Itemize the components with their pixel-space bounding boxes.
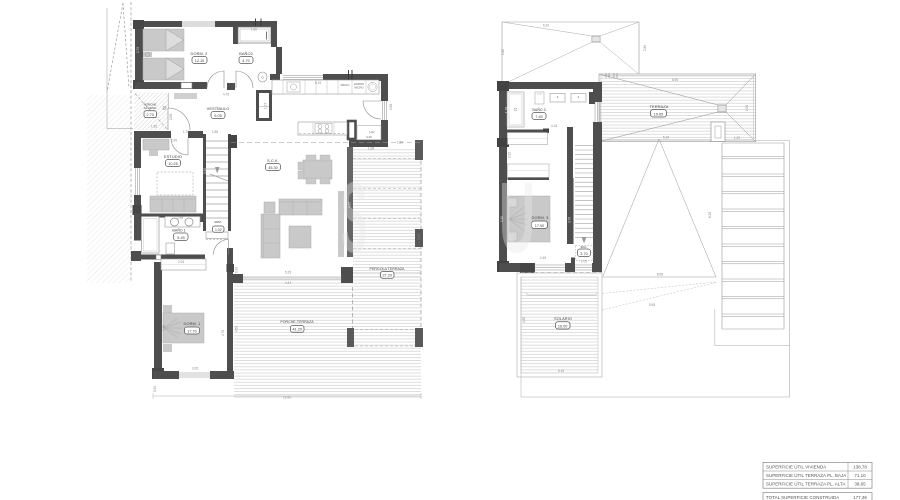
svg-text:41.20: 41.20 (292, 328, 302, 332)
svg-text:71,10: 71,10 (854, 473, 866, 478)
svg-text:0.90: 0.90 (235, 267, 239, 273)
svg-text:MICRO: MICRO (354, 86, 364, 90)
svg-text:1.02: 1.02 (215, 228, 222, 232)
svg-text:2.95: 2.95 (177, 216, 183, 220)
svg-text:TERRAZA: TERRAZA (650, 104, 669, 109)
svg-text:5.19: 5.19 (315, 81, 321, 85)
svg-text:4.44: 4.44 (285, 281, 291, 285)
svg-text:1.80: 1.80 (397, 141, 403, 145)
svg-text:17.70: 17.70 (187, 329, 197, 333)
svg-text:38,65: 38,65 (854, 482, 866, 487)
svg-text:6.95: 6.95 (672, 78, 678, 82)
svg-text:FRIGO: FRIGO (341, 83, 351, 87)
svg-text:2.66: 2.66 (389, 104, 393, 110)
svg-text:U: U (499, 162, 535, 274)
svg-text:0.90: 0.90 (417, 234, 421, 240)
svg-text:3.76: 3.76 (568, 217, 572, 223)
svg-text:4.70: 4.70 (242, 59, 249, 63)
svg-text:8.55: 8.55 (657, 273, 663, 277)
svg-text:12.10: 12.10 (195, 59, 205, 63)
svg-text:SUPERFICIE ÚTIL VIVIENDA: SUPERFICIE ÚTIL VIVIENDA (766, 464, 826, 470)
svg-text:PORCHE-TERRAZA: PORCHE-TERRAZA (280, 320, 314, 324)
svg-text:2.70: 2.70 (147, 113, 154, 117)
svg-text:16.00: 16.00 (558, 324, 568, 328)
svg-text:3.30: 3.30 (203, 168, 207, 174)
svg-text:9.05: 9.05 (214, 114, 221, 118)
svg-text:5.45: 5.45 (177, 236, 184, 240)
svg-text:5.15: 5.15 (663, 136, 669, 140)
svg-text:3.15: 3.15 (508, 152, 512, 158)
svg-text:4.70: 4.70 (223, 93, 229, 97)
svg-text:SOLARIO: SOLARIO (554, 316, 572, 321)
svg-text:S.C.K.: S.C.K. (267, 158, 279, 163)
svg-text:1.55: 1.55 (151, 125, 157, 129)
svg-text:2.99: 2.99 (171, 139, 177, 143)
svg-text:VESTÍBULO: VESTÍBULO (207, 106, 230, 111)
svg-text:2.80: 2.80 (501, 49, 505, 55)
svg-text:SUPERFICIE ÚTIL TERRAZA PL. AL: SUPERFICIE ÚTIL TERRAZA PL. ALTA (766, 481, 845, 487)
svg-text:4.50: 4.50 (235, 326, 239, 332)
svg-text:1.23: 1.23 (264, 103, 268, 109)
svg-text:3.70: 3.70 (580, 252, 587, 256)
svg-text:1.80: 1.80 (251, 28, 257, 32)
svg-text:1.20: 1.20 (734, 136, 740, 140)
svg-text:2.46: 2.46 (540, 256, 546, 260)
svg-text:6.20: 6.20 (543, 24, 549, 28)
svg-text:SUPERFICIE ÚTIL TERRAZA PL. BA: SUPERFICIE ÚTIL TERRAZA PL. BAJA (766, 472, 846, 478)
svg-text:DORM. 1: DORM. 1 (184, 321, 201, 326)
svg-text:1.05: 1.05 (581, 260, 587, 264)
svg-text:LAV: LAV (369, 130, 374, 134)
svg-text:5.25: 5.25 (285, 271, 291, 275)
svg-text:3.05: 3.05 (192, 367, 198, 371)
svg-text:TOTAL SUPERFICIE CONSTRUIDA: TOTAL SUPERFICIE CONSTRUIDA (766, 495, 839, 500)
svg-text:0.90: 0.90 (153, 386, 157, 392)
svg-text:ACCESO: ACCESO (144, 106, 157, 110)
svg-text:4.70: 4.70 (221, 330, 225, 336)
svg-text:1.70: 1.70 (183, 130, 189, 134)
svg-text:1.68: 1.68 (368, 147, 374, 151)
svg-text:5.16: 5.16 (558, 369, 564, 373)
svg-text:ARM.: ARM. (214, 220, 222, 224)
svg-text:4.80: 4.80 (522, 317, 526, 323)
svg-text:27.20: 27.20 (382, 274, 392, 278)
svg-text:138,78: 138,78 (853, 465, 867, 470)
svg-text:3.38: 3.38 (162, 325, 166, 331)
svg-text:17.90: 17.90 (535, 224, 545, 228)
svg-text:BAÑO 3: BAÑO 3 (532, 107, 545, 112)
svg-text:45.30: 45.30 (268, 166, 278, 170)
svg-text:0.20: 0.20 (366, 135, 372, 139)
svg-text:1.88: 1.88 (212, 130, 218, 134)
svg-text:10.25: 10.25 (168, 162, 178, 166)
svg-text:DORM. 2: DORM. 2 (191, 51, 208, 56)
svg-text:7.40: 7.40 (535, 115, 542, 119)
svg-text:2.06: 2.06 (178, 260, 184, 264)
svg-text:PERGOLA TERRAZA: PERGOLA TERRAZA (370, 267, 405, 271)
svg-text:1.78: 1.78 (505, 107, 509, 113)
svg-text:2.08: 2.08 (169, 114, 173, 120)
svg-text:4.18: 4.18 (551, 124, 557, 128)
svg-text:6.28: 6.28 (708, 212, 712, 218)
svg-text:2.80: 2.80 (643, 45, 647, 51)
svg-text:177,36: 177,36 (853, 495, 867, 500)
svg-text:ESC.: ESC. (581, 245, 588, 249)
svg-text:BAÑO 1: BAÑO 1 (172, 228, 185, 233)
svg-text:2.79: 2.79 (136, 47, 140, 53)
svg-text:19.65: 19.65 (654, 112, 664, 116)
svg-text:BAÑO2: BAÑO2 (239, 51, 253, 56)
svg-text:S: S (341, 162, 367, 274)
svg-text:5.55: 5.55 (649, 303, 655, 307)
svg-text:2.50: 2.50 (745, 105, 749, 111)
svg-text:ESTUDIO: ESTUDIO (164, 154, 182, 159)
